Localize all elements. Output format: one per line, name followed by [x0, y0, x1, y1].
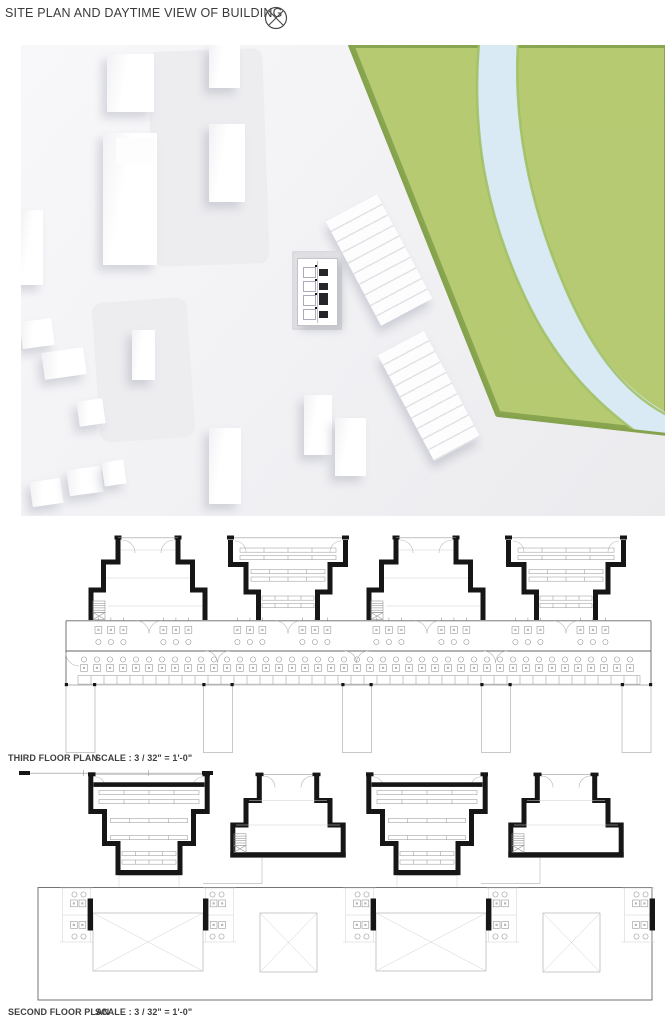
compass-icon [262, 3, 290, 31]
desk-cluster [486, 888, 519, 942]
presentation-sheet: SITE PLAN AND DAYTIME VIEW OF BUILDING [0, 0, 665, 1024]
plan3-unit-3 [369, 536, 483, 621]
plan3-unit-2 [227, 536, 349, 621]
plan2-unit-1 [88, 772, 210, 887]
page-title: SITE PLAN AND DAYTIME VIEW OF BUILDING [5, 6, 283, 20]
desk-cluster [343, 888, 376, 942]
plan2-lower-plate [38, 888, 652, 1001]
plan3-unit-4 [505, 536, 627, 621]
second-floor-plan-drawing [0, 762, 665, 1007]
scale-bar [19, 770, 213, 776]
second-floor-plan-caption: SECOND FLOOR PLAN SCALE : 3 / 32" = 1'-0… [0, 1007, 400, 1019]
third-floor-plan-drawing [0, 520, 665, 765]
desk-cluster [203, 888, 236, 942]
plan3-corridor [65, 618, 652, 753]
site-render [21, 45, 665, 516]
plan2-unit-2 [203, 773, 346, 884]
plan3-unit-1 [91, 536, 205, 621]
plan2-unit-3 [366, 772, 488, 887]
desk-cluster [622, 888, 655, 942]
desk-cluster [60, 888, 93, 942]
plan2-unit-4 [481, 773, 624, 884]
plan-scale: SCALE : 3 / 32" = 1'-0" [95, 1007, 192, 1017]
park-river-graphic [21, 45, 665, 516]
